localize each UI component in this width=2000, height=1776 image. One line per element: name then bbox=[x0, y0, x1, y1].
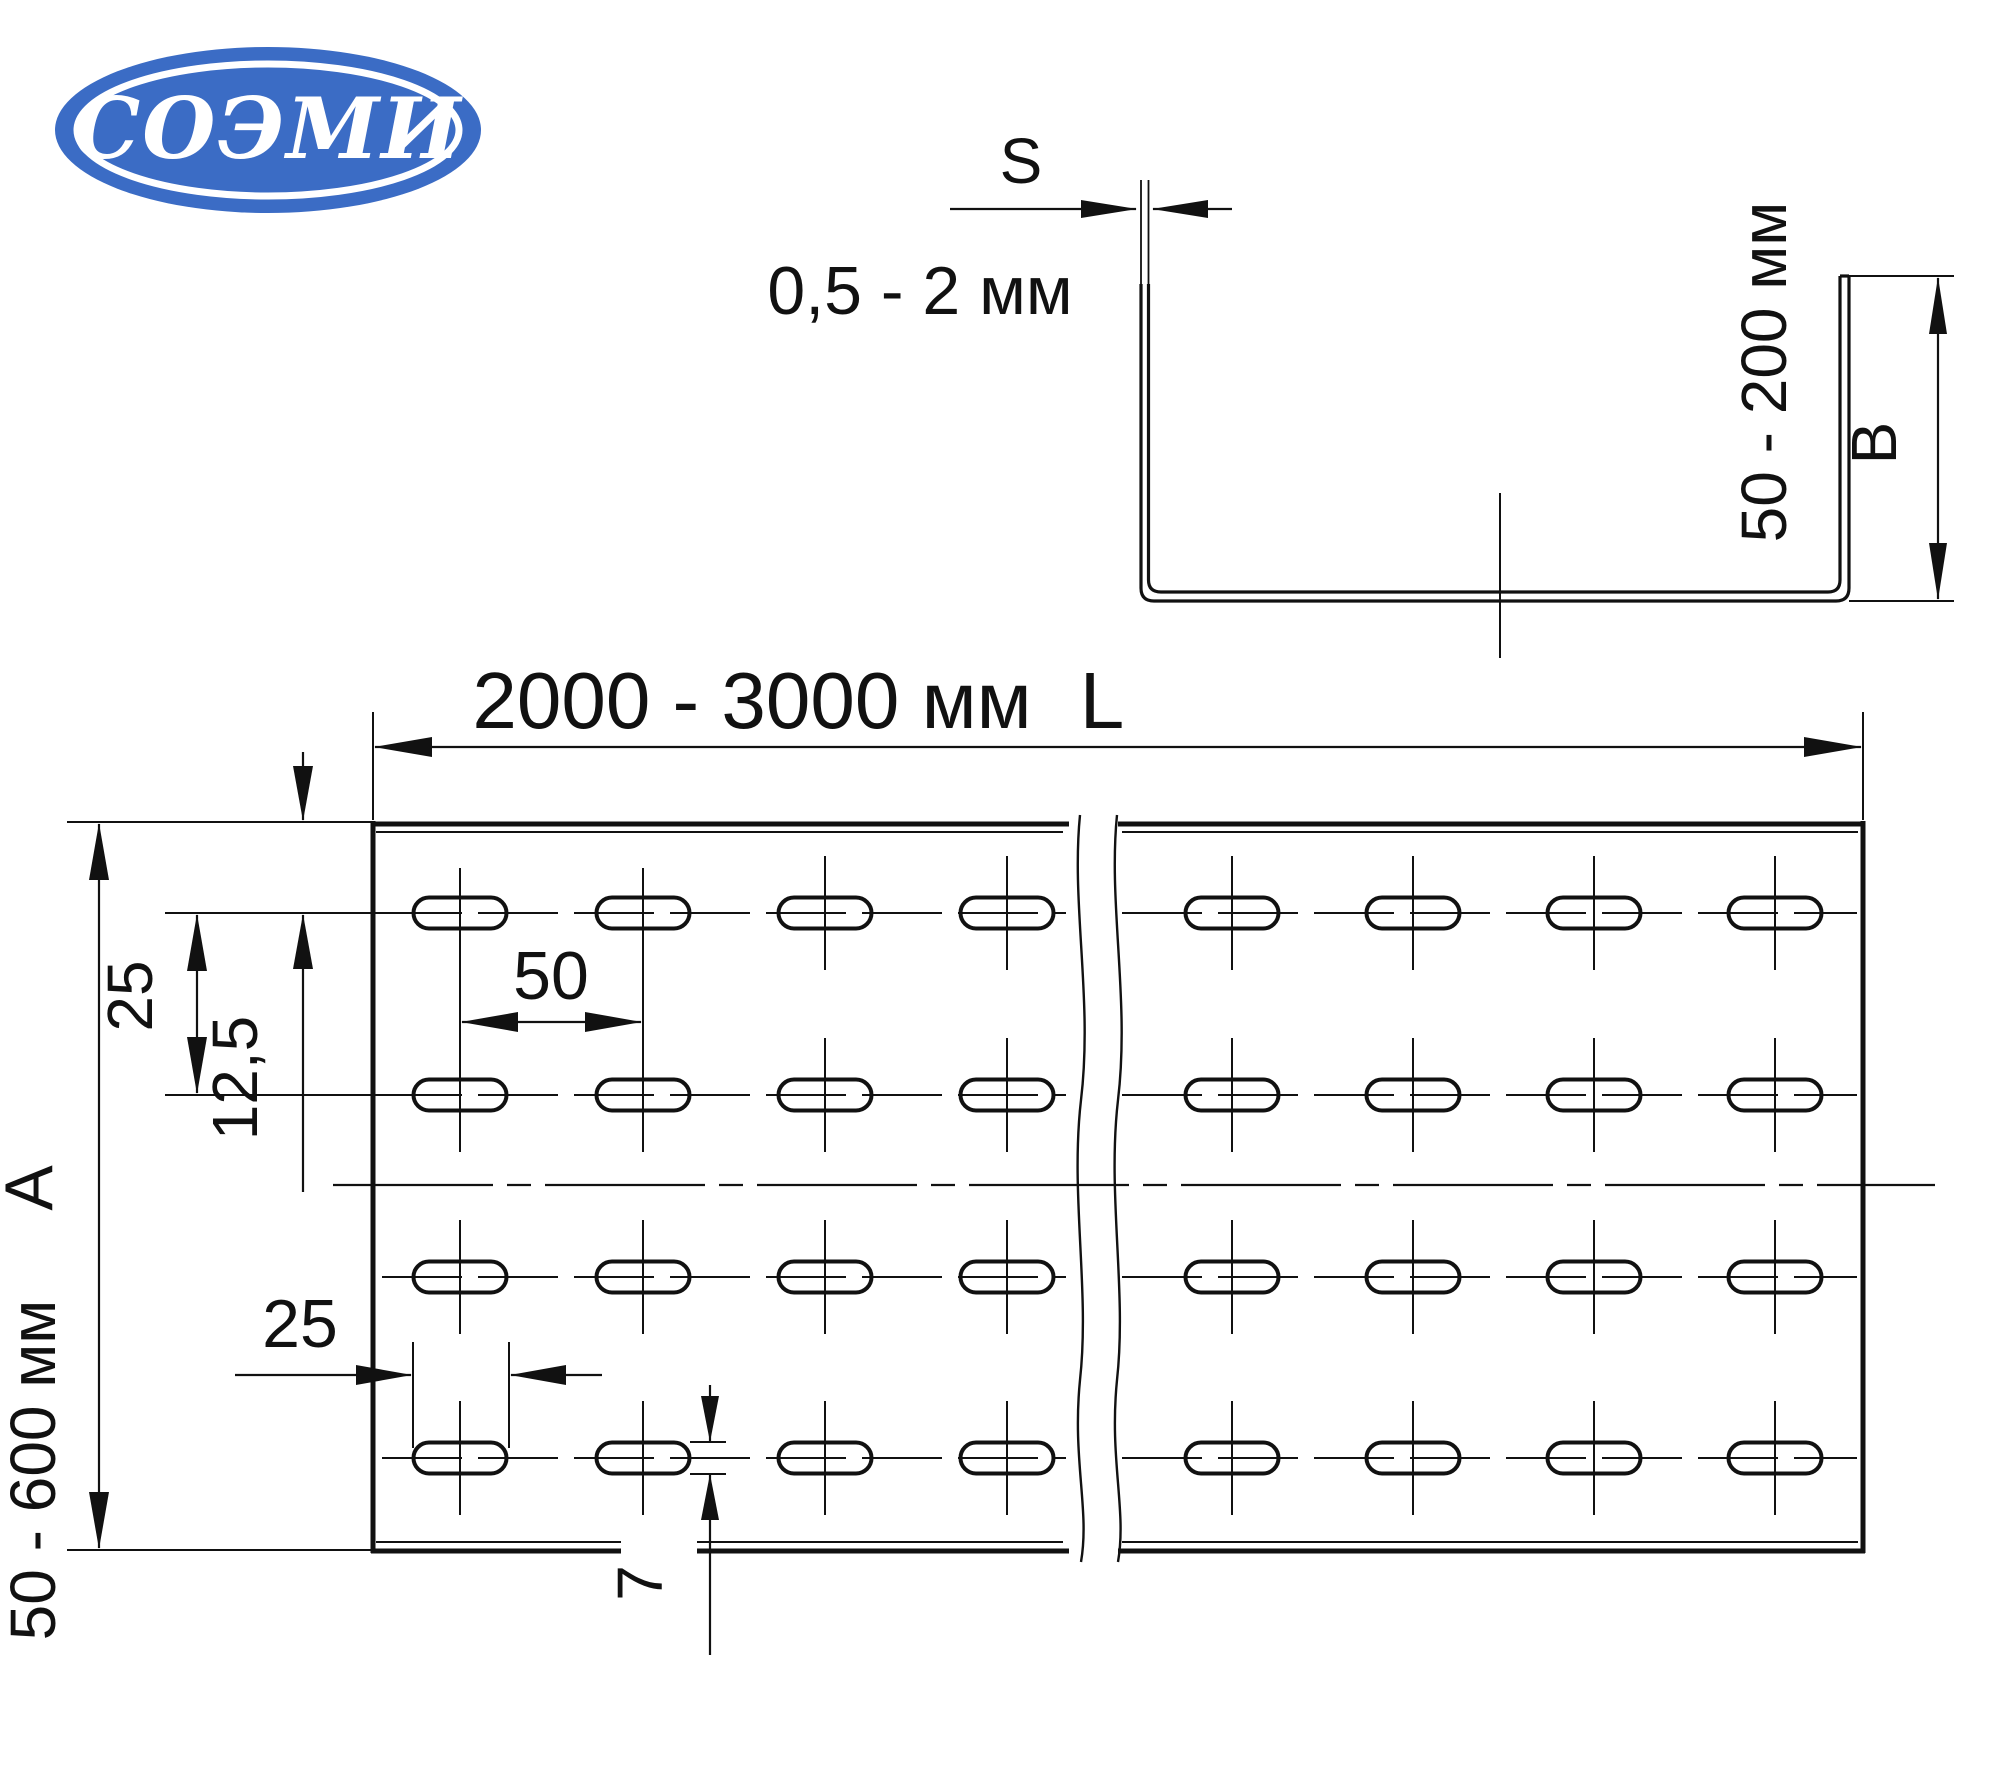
arrowhead bbox=[510, 1365, 566, 1385]
arrowhead bbox=[89, 823, 109, 880]
arrowhead bbox=[356, 1365, 412, 1385]
height-range-label: 50 - 200 мм bbox=[1728, 202, 1800, 543]
thickness-symbol-label: S bbox=[1000, 125, 1043, 197]
break-line-right bbox=[1115, 815, 1122, 1562]
dim-slot-width bbox=[690, 1385, 726, 1655]
arrowhead bbox=[293, 766, 313, 821]
arrowhead bbox=[461, 1012, 518, 1032]
arrowhead bbox=[701, 1474, 719, 1520]
arrowhead bbox=[293, 914, 313, 969]
edge-offset-label: 12,5 bbox=[199, 1016, 271, 1141]
row-pitch-label: 25 bbox=[94, 960, 166, 1031]
arrowhead bbox=[187, 914, 207, 971]
slot-pitch-label: 50 bbox=[513, 938, 589, 1014]
dim-width bbox=[67, 822, 371, 1550]
plan-view bbox=[67, 712, 1935, 1655]
slot-width-label: 7 bbox=[604, 1565, 676, 1601]
dim-slot-pitch bbox=[461, 1012, 642, 1032]
arrowhead bbox=[585, 1012, 642, 1032]
cross-section-view bbox=[950, 180, 1954, 658]
thickness-range-label: 0,5 - 2 мм bbox=[767, 253, 1072, 329]
engineering-drawing: СОЭМИ S 0,5 - 2 мм 50 - bbox=[0, 0, 2000, 1771]
arrowhead bbox=[89, 1492, 109, 1549]
dim-thickness bbox=[950, 200, 1232, 218]
break-line-left bbox=[1078, 815, 1085, 1562]
slot-length-label: 25 bbox=[262, 1286, 338, 1362]
arrowhead bbox=[374, 737, 432, 757]
length-range-label: 2000 - 3000 мм bbox=[472, 656, 1031, 745]
length-symbol-label: L bbox=[1080, 656, 1125, 745]
arrowhead bbox=[1804, 737, 1862, 757]
height-symbol-label: B bbox=[1838, 422, 1910, 465]
arrowhead bbox=[1929, 543, 1947, 600]
arrowhead bbox=[1081, 200, 1137, 218]
dim-edge-offset bbox=[293, 752, 313, 1192]
width-range-label: 50 - 600 мм bbox=[0, 1300, 69, 1641]
logo-text: СОЭМИ bbox=[73, 79, 463, 178]
arrowhead bbox=[701, 1396, 719, 1442]
width-symbol-label: A bbox=[0, 1165, 67, 1211]
drawing-canvas: СОЭМИ S 0,5 - 2 мм 50 - bbox=[0, 0, 2000, 1771]
arrowhead bbox=[1929, 277, 1947, 334]
arrowhead bbox=[1152, 200, 1208, 218]
logo: СОЭМИ bbox=[55, 47, 481, 213]
